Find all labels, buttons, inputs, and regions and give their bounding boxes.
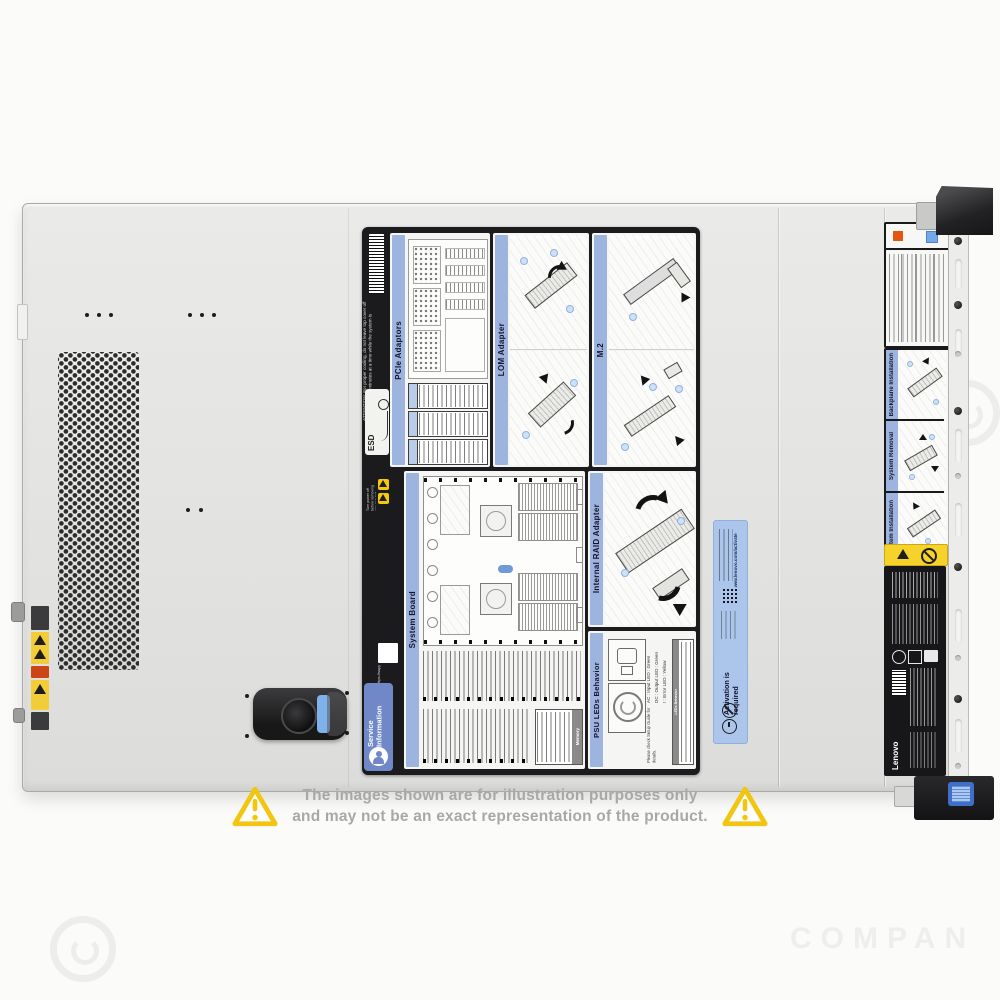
screw [954, 301, 962, 309]
panel-title-bar: Internal RAID Adapter [590, 473, 603, 625]
screw-hole [345, 691, 349, 695]
screw [954, 237, 962, 245]
memory-table-title: Memory [575, 728, 580, 745]
psu-legend-line: DC : Output LED : Green [654, 637, 662, 703]
instruction-title: Backplane Installation [889, 353, 895, 416]
esd-text: ESD [366, 393, 377, 451]
connector [576, 547, 583, 563]
warning-triangle-icon [379, 494, 387, 501]
rear-thumbscrew [13, 708, 25, 723]
psu-legend-line: AC : Input LED : Green [646, 637, 654, 703]
connector [576, 489, 583, 505]
psu-fan-illustration [608, 683, 646, 733]
latch-housing [327, 692, 347, 736]
screw [954, 407, 962, 415]
arrow-icon [671, 433, 684, 446]
riser-area [440, 585, 470, 635]
callout-markers [424, 478, 582, 482]
latch-knob [281, 698, 317, 734]
pcie-slot [445, 265, 485, 276]
riser-table [408, 439, 488, 465]
psu-legend-line: ! : Error LED : Yellow [662, 637, 670, 703]
panel-title-bar: LOM Adapter [495, 235, 508, 465]
product-photo: COMPAN COMPAN COMPAN COMPAN COMPAN [0, 0, 1000, 1000]
arrow-icon [669, 598, 686, 616]
disclaimer-line1: The images shown are for illustration pu… [292, 786, 708, 806]
psu-table-title: LEDs Behavior [674, 689, 678, 715]
service-information-band: Service Information [364, 683, 393, 771]
service-person-icon [369, 747, 388, 766]
screw-hole [199, 508, 203, 512]
regulatory-fine-print [910, 668, 938, 726]
screw-hole [200, 313, 204, 317]
cover-seam [778, 208, 779, 787]
cpu-socket [480, 583, 512, 615]
cert-mark-icon [908, 650, 922, 664]
panel-m2: M.2 [592, 233, 696, 467]
screw-hole [188, 313, 192, 317]
rear-thumbscrew [11, 602, 25, 622]
screw [954, 695, 962, 703]
rear-warning-label [31, 680, 49, 710]
panel-title: M.2 [596, 343, 605, 357]
power-off-warning: Turn power off before removing any non-h… [366, 479, 390, 511]
panel-title: PCIe Adaptors [394, 321, 403, 380]
regulatory-fine-print [892, 604, 938, 644]
warning-icon [378, 479, 389, 490]
warning-triangle-icon [34, 635, 46, 645]
activation-fine-print [721, 611, 739, 639]
rear-hot-surface-label [31, 666, 49, 678]
panel-title: LOM Adapter [497, 323, 506, 376]
disclaimer: The images shown are for illustration pu… [0, 786, 1000, 827]
cert-mark-icon [924, 650, 938, 662]
panel-title: PSU LEDs Behavior [592, 662, 601, 738]
rear-info-label [31, 606, 49, 630]
panel-title-bar: PCIe Adaptors [392, 235, 405, 465]
edge-notch [17, 304, 28, 340]
legend-text-block [423, 709, 531, 763]
cover-seam [348, 208, 349, 787]
rack-latch-top [936, 186, 993, 235]
screw-hole [245, 694, 249, 698]
dimm-bank [518, 573, 578, 601]
lom-illustration [510, 235, 587, 350]
warning-triangle-icon [379, 480, 387, 487]
rear-warning-label [31, 632, 49, 664]
instruction-backplane-installation: Backplane Installation [886, 350, 944, 419]
amber-led-icon [893, 231, 903, 241]
regulatory-fine-print [892, 572, 938, 598]
panel-lom-adapter: LOM Adapter [493, 233, 589, 467]
screw-hole [85, 313, 89, 317]
fan-grid [413, 246, 441, 284]
prohibition-icon [921, 548, 937, 564]
panel-psu-leds: PSU LEDs Behavior AC : Input LED : Green… [588, 631, 696, 769]
cover-release-latch [253, 688, 347, 740]
activation-url: www.lenovo.com/activate [733, 529, 742, 589]
riser-table [408, 411, 488, 437]
panel-internal-raid: Internal RAID Adapter [588, 471, 696, 627]
regulatory-fine-print [910, 732, 938, 768]
disclaimer-line2: and may not be an exact representation o… [292, 807, 708, 827]
vent-grid [58, 352, 139, 670]
dimm-bank [518, 513, 578, 541]
watermark-logo [50, 916, 116, 982]
barcode [892, 670, 906, 696]
pcie-slot [445, 248, 485, 259]
instruction-system-removal: System Removal [886, 419, 944, 491]
warning-icon [378, 493, 389, 504]
warning-triangle-icon [897, 549, 909, 559]
qr-code [378, 643, 398, 663]
cert-mark-icon [892, 650, 906, 664]
panel-title: System Board [408, 591, 417, 648]
panel-pcie-adaptors: PCIe Adaptors [390, 233, 490, 467]
fan-grid [413, 330, 441, 372]
caution-label [884, 544, 948, 566]
regulatory-label: Lenovo [884, 566, 946, 776]
connector [576, 607, 583, 623]
riser-table [408, 383, 488, 409]
screw-hole [212, 313, 216, 317]
esd-cable-icon [379, 411, 388, 441]
instruction-title: System Removal [889, 432, 895, 480]
panel-title-bar: System Board [406, 473, 419, 767]
callout-markers [424, 640, 582, 644]
front-rail [948, 211, 969, 779]
led-description-table [889, 254, 945, 342]
panel-system-board: System Board [404, 471, 585, 769]
esd-label: ESD [365, 389, 389, 455]
m2-illustration [609, 235, 694, 350]
arrow-icon [682, 293, 691, 303]
riser-area [440, 485, 470, 535]
fan-grid [413, 288, 441, 326]
dimm-bank [518, 603, 578, 631]
psu-bay [445, 318, 485, 372]
barcode [369, 234, 384, 294]
panel-title-bar: PSU LEDs Behavior [590, 633, 603, 767]
power-off-warning-text: Turn power off before removing any non-h… [366, 479, 376, 511]
cpu-socket [480, 505, 512, 537]
screw-hole [245, 734, 249, 738]
service-label: ATTENTION: For proper cooling, do not le… [362, 227, 700, 775]
rear-info-label [31, 712, 49, 730]
pcie-slot [445, 299, 485, 310]
no-delay-icon [722, 703, 737, 718]
panel-title-bar: M.2 [594, 235, 607, 465]
brand-logo: Lenovo [891, 730, 905, 770]
warning-triangle-icon [34, 684, 46, 694]
m2-retainer [663, 362, 682, 380]
raid-illustration [605, 473, 694, 625]
disclaimer-text: The images shown are for illustration pu… [292, 786, 708, 827]
warning-triangle-icon [232, 786, 278, 827]
psu-table: LEDs Behavior [672, 639, 694, 765]
panel-title: Internal RAID Adapter [592, 504, 601, 593]
instruction-labels: Backplane Installation System Removal Sy… [884, 348, 950, 564]
legend-text-block [423, 651, 581, 701]
warning-triangle-icon [34, 649, 46, 659]
arrow-icon [539, 374, 551, 386]
system-board-diagram [423, 476, 583, 646]
activation-sticker: www.lenovo.com/activate Activation is re… [713, 520, 748, 744]
psu-note: Please check Setup Guide for details. [646, 707, 662, 763]
warning-triangle-icon [722, 786, 768, 827]
rear-view-diagram [408, 239, 488, 379]
m2-drive [624, 395, 677, 437]
support-url: https://support.lenovo.com [376, 665, 398, 685]
screw-hole [109, 313, 113, 317]
watermark-text: COMPAN [790, 922, 975, 956]
m2-module [667, 262, 691, 288]
qr-code [721, 587, 739, 605]
screw-hole [186, 508, 190, 512]
service-information-title: Service Information [367, 685, 390, 747]
memory-table: Memory [535, 709, 583, 765]
highlight-pill [498, 565, 513, 573]
m2-illustration [609, 351, 694, 465]
pcie-slot [445, 282, 485, 293]
psu-socket-illustration [608, 639, 646, 681]
esd-wrist-strap-icon [378, 399, 389, 410]
lom-illustration [510, 351, 587, 465]
dimm-bank [518, 483, 578, 511]
operator-panel-label [884, 222, 950, 348]
screw-hole [97, 313, 101, 317]
screw [954, 563, 962, 571]
activation-fine-print [719, 529, 733, 581]
clock-icon [722, 719, 737, 734]
